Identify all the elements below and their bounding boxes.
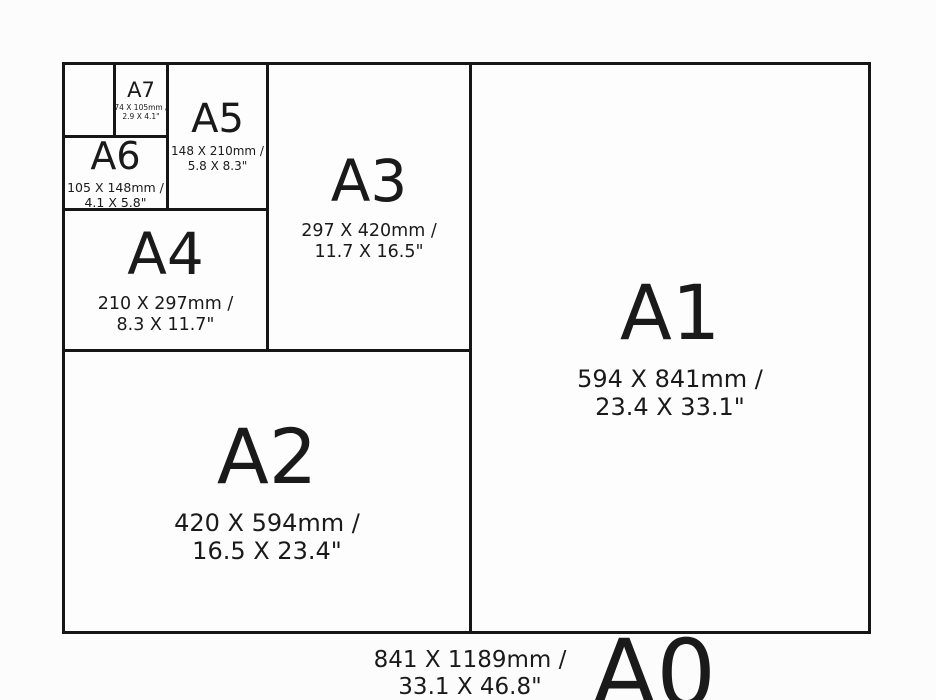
paper-cell-a3: A3 297 X 420mm / 11.7 X 16.5" — [266, 62, 472, 352]
dims-in-a4: 8.3 X 11.7" — [98, 315, 233, 336]
dims-in-a3: 11.7 X 16.5" — [301, 242, 436, 263]
paper-cell-empty — [62, 62, 116, 138]
dims-mm-a1: 594 X 841mm / — [577, 365, 763, 393]
paper-dims-a0: 841 X 1189mm / 33.1 X 46.8" — [320, 647, 620, 700]
paper-label-a1: A1 — [620, 275, 720, 351]
paper-label-a6: A6 — [90, 137, 140, 175]
paper-label-a3: A3 — [331, 152, 408, 210]
dims-in-a7: 2.9 X 4.1" — [114, 112, 167, 121]
paper-cell-a2: A2 420 X 594mm / 16.5 X 23.4" — [62, 349, 472, 634]
dims-in-a1: 23.4 X 33.1" — [577, 393, 763, 421]
paper-sizes-diagram: A7 74 X 105mm / 2.9 X 4.1" A6 105 X 148m… — [0, 0, 936, 700]
paper-dims-a2: 420 X 594mm / 16.5 X 23.4" — [174, 509, 360, 565]
dims-mm-a0: 841 X 1189mm / — [320, 647, 620, 674]
paper-dims-a5: 148 X 210mm / 5.8 X 8.3" — [171, 144, 264, 174]
paper-label-a7: A7 — [127, 80, 155, 101]
dims-in-a0: 33.1 X 46.8" — [320, 674, 620, 700]
dims-in-a2: 16.5 X 23.4" — [174, 537, 360, 565]
paper-cell-a5: A5 148 X 210mm / 5.8 X 8.3" — [166, 62, 269, 211]
dims-mm-a6: 105 X 148mm / — [67, 180, 164, 195]
paper-dims-a7: 74 X 105mm / 2.9 X 4.1" — [114, 103, 167, 121]
paper-label-a0: A0 — [592, 628, 716, 700]
paper-cell-a4: A4 210 X 297mm / 8.3 X 11.7" — [62, 208, 269, 352]
paper-cell-a1: A1 594 X 841mm / 23.4 X 33.1" — [469, 62, 871, 634]
paper-label-a4: A4 — [127, 225, 204, 283]
dims-mm-a7: 74 X 105mm / — [114, 103, 167, 112]
paper-label-a5: A5 — [191, 99, 244, 139]
paper-label-a2: A2 — [217, 419, 317, 495]
dims-mm-a5: 148 X 210mm / — [171, 144, 264, 159]
paper-dims-a1: 594 X 841mm / 23.4 X 33.1" — [577, 365, 763, 421]
paper-cell-a7: A7 74 X 105mm / 2.9 X 4.1" — [113, 62, 169, 138]
dims-mm-a4: 210 X 297mm / — [98, 294, 233, 315]
paper-dims-a6: 105 X 148mm / 4.1 X 5.8" — [67, 180, 164, 210]
paper-dims-a4: 210 X 297mm / 8.3 X 11.7" — [98, 294, 233, 336]
paper-dims-a3: 297 X 420mm / 11.7 X 16.5" — [301, 221, 436, 263]
dims-in-a5: 5.8 X 8.3" — [171, 159, 264, 174]
dims-mm-a3: 297 X 420mm / — [301, 221, 436, 242]
paper-cell-a6: A6 105 X 148mm / 4.1 X 5.8" — [62, 135, 169, 211]
dims-mm-a2: 420 X 594mm / — [174, 509, 360, 537]
